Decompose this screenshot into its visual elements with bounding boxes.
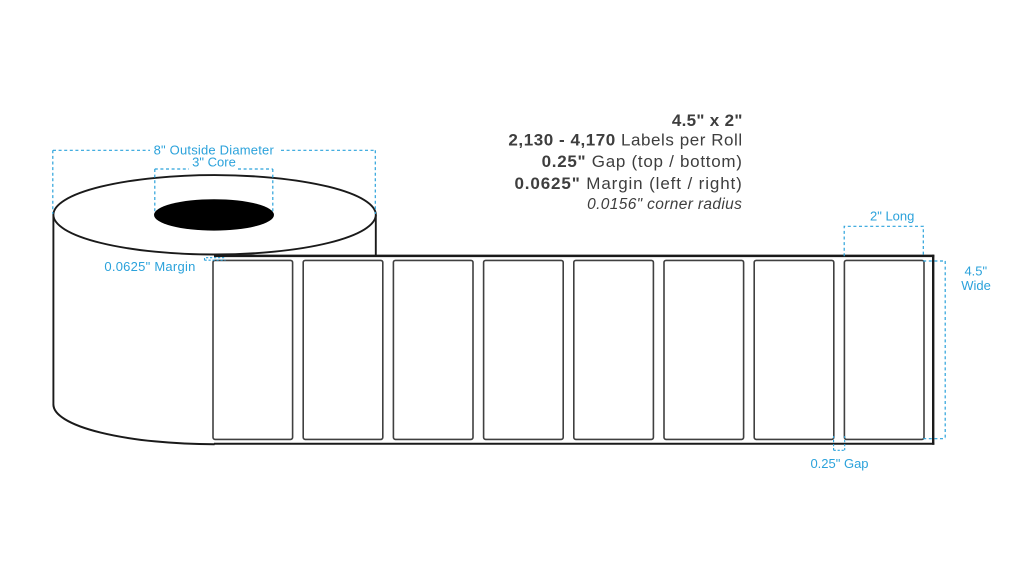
svg-text:0.0625" Margin: 0.0625" Margin xyxy=(104,259,195,274)
svg-text:0.0625" Margin (left / right): 0.0625" Margin (left / right) xyxy=(514,174,742,193)
svg-text:4.5" x 2": 4.5" x 2" xyxy=(672,111,743,130)
svg-text:4.5": 4.5" xyxy=(964,263,987,278)
svg-text:Wide: Wide xyxy=(961,278,991,293)
svg-text:0.25" Gap: 0.25" Gap xyxy=(810,456,868,471)
svg-text:2" Long: 2" Long xyxy=(870,209,914,224)
svg-text:0.25" Gap (top / bottom): 0.25" Gap (top / bottom) xyxy=(542,152,743,171)
svg-text:0.0156" corner radius: 0.0156" corner radius xyxy=(587,196,742,213)
svg-text:2,130 - 4,170 Labels per Roll: 2,130 - 4,170 Labels per Roll xyxy=(508,131,742,150)
svg-text:3" Core: 3" Core xyxy=(192,155,236,170)
